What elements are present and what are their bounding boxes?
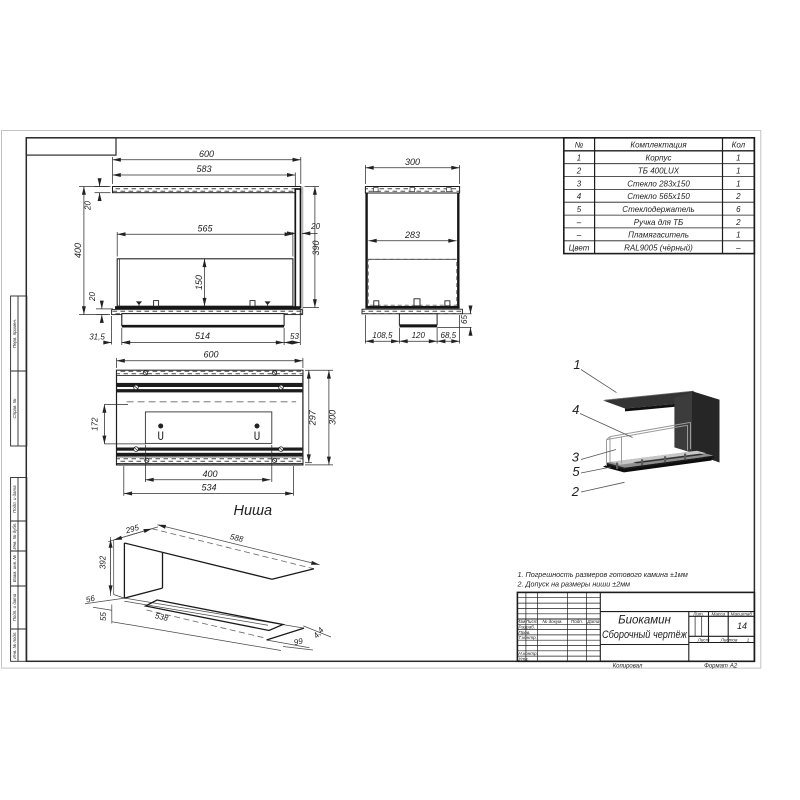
svg-text:RAL9005 (чёрный): RAL9005 (чёрный) xyxy=(624,244,693,253)
svg-text:Ниша: Ниша xyxy=(233,503,272,519)
svg-text:1: 1 xyxy=(747,638,750,643)
svg-text:Лист: Лист xyxy=(697,638,710,643)
svg-text:Биокамин: Биокамин xyxy=(618,615,671,627)
svg-text:Корпус: Корпус xyxy=(645,154,671,163)
svg-text:20: 20 xyxy=(84,201,93,211)
svg-text:А2: А2 xyxy=(729,664,738,670)
svg-text:600: 600 xyxy=(203,350,218,360)
svg-text:583: 583 xyxy=(196,164,211,174)
svg-text:Подп.: Подп. xyxy=(571,619,583,624)
svg-text:150: 150 xyxy=(194,275,204,290)
svg-text:600: 600 xyxy=(199,149,214,159)
svg-text:Формат: Формат xyxy=(704,664,728,670)
svg-text:53: 53 xyxy=(290,332,299,341)
svg-text:120: 120 xyxy=(412,331,426,340)
svg-text:№: № xyxy=(575,141,584,150)
svg-text:Утв.: Утв. xyxy=(518,656,528,661)
svg-text:514: 514 xyxy=(195,331,210,341)
svg-text:2: 2 xyxy=(576,166,582,175)
svg-text:300: 300 xyxy=(405,157,420,167)
svg-text:20: 20 xyxy=(310,222,320,231)
svg-text:2: 2 xyxy=(571,484,580,499)
svg-text:Взам. инв. №: Взам. инв. № xyxy=(12,555,17,582)
svg-text:400: 400 xyxy=(202,469,217,479)
svg-text:Копировал: Копировал xyxy=(613,664,643,670)
svg-text:Масса: Масса xyxy=(712,611,726,616)
svg-text:Подп. и дата: Подп. и дата xyxy=(12,485,17,513)
svg-text:Перв. примен.: Перв. примен. xyxy=(12,319,17,348)
svg-text:1: 1 xyxy=(573,357,580,372)
svg-text:6: 6 xyxy=(736,205,741,214)
svg-text:1: 1 xyxy=(736,166,740,175)
svg-text:3: 3 xyxy=(572,450,580,465)
svg-text:4: 4 xyxy=(572,402,579,417)
svg-text:ТБ 400LUX: ТБ 400LUX xyxy=(638,166,680,175)
svg-text:Комплектация: Комплектация xyxy=(630,141,687,150)
svg-text:Лист: Лист xyxy=(525,619,538,624)
svg-text:1: 1 xyxy=(736,231,740,240)
svg-text:Стекло 283х150: Стекло 283х150 xyxy=(627,179,690,188)
svg-text:2: 2 xyxy=(735,192,741,201)
svg-text:20: 20 xyxy=(88,292,97,302)
svg-text:Ручка для ТБ: Ручка для ТБ xyxy=(634,218,683,227)
svg-text:–: – xyxy=(576,231,582,240)
svg-text:5: 5 xyxy=(572,464,580,479)
svg-text:№ докум.: № докум. xyxy=(542,619,562,624)
svg-text:–: – xyxy=(735,244,741,253)
svg-text:283: 283 xyxy=(404,230,420,240)
svg-text:390: 390 xyxy=(311,240,321,255)
svg-text:5: 5 xyxy=(577,205,582,214)
svg-text:Н.контр.: Н.контр. xyxy=(518,651,537,656)
svg-text:Кол: Кол xyxy=(732,141,746,150)
svg-text:Инв. № дубл.: Инв. № дубл. xyxy=(12,522,17,549)
svg-text:Пров.: Пров. xyxy=(518,630,530,635)
svg-text:4: 4 xyxy=(577,192,582,201)
svg-text:–: – xyxy=(576,218,582,227)
svg-text:14: 14 xyxy=(737,621,747,631)
svg-text:Разраб.: Разраб. xyxy=(518,625,535,630)
svg-text:1: 1 xyxy=(577,154,581,163)
svg-text:1: 1 xyxy=(736,179,740,188)
svg-text:534: 534 xyxy=(201,483,216,493)
svg-text:65: 65 xyxy=(460,315,469,324)
svg-text:Масштаб: Масштаб xyxy=(731,611,753,616)
svg-text:297: 297 xyxy=(308,409,318,426)
svg-text:Подп. и дата: Подп. и дата xyxy=(12,593,17,621)
svg-text:68,5: 68,5 xyxy=(441,331,457,340)
svg-text:Стекло 565х150: Стекло 565х150 xyxy=(627,192,690,201)
svg-text:3: 3 xyxy=(577,179,582,188)
svg-text:Пламягаситель: Пламягаситель xyxy=(628,231,689,240)
svg-text:Цвет: Цвет xyxy=(569,244,590,253)
svg-text:Т.контр.: Т.контр. xyxy=(518,635,537,640)
svg-text:400: 400 xyxy=(73,243,83,258)
svg-text:392: 392 xyxy=(99,555,108,569)
svg-text:2. Допуск на размеры ниши ±2мм: 2. Допуск на размеры ниши ±2мм xyxy=(517,580,631,589)
svg-text:172: 172 xyxy=(90,417,99,431)
svg-text:Стеклодержатель: Стеклодержатель xyxy=(622,205,694,214)
svg-text:2: 2 xyxy=(735,218,741,227)
svg-text:565: 565 xyxy=(197,223,213,233)
svg-text:Инв. № подл.: Инв. № подл. xyxy=(12,631,17,658)
svg-text:Лит.: Лит. xyxy=(692,611,704,616)
svg-text:108,5: 108,5 xyxy=(372,331,393,340)
svg-text:Справ. №: Справ. № xyxy=(12,398,17,418)
svg-text:1. Погрешность размеров готово: 1. Погрешность размеров готового камина … xyxy=(518,570,688,579)
svg-text:Сборочный чертёж: Сборочный чертёж xyxy=(602,629,687,641)
svg-text:Дата: Дата xyxy=(586,619,600,624)
svg-text:55: 55 xyxy=(99,612,108,621)
svg-text:31,5: 31,5 xyxy=(89,333,105,342)
svg-text:300: 300 xyxy=(328,410,338,425)
svg-text:1: 1 xyxy=(736,154,740,163)
svg-text:Листов: Листов xyxy=(720,638,738,643)
